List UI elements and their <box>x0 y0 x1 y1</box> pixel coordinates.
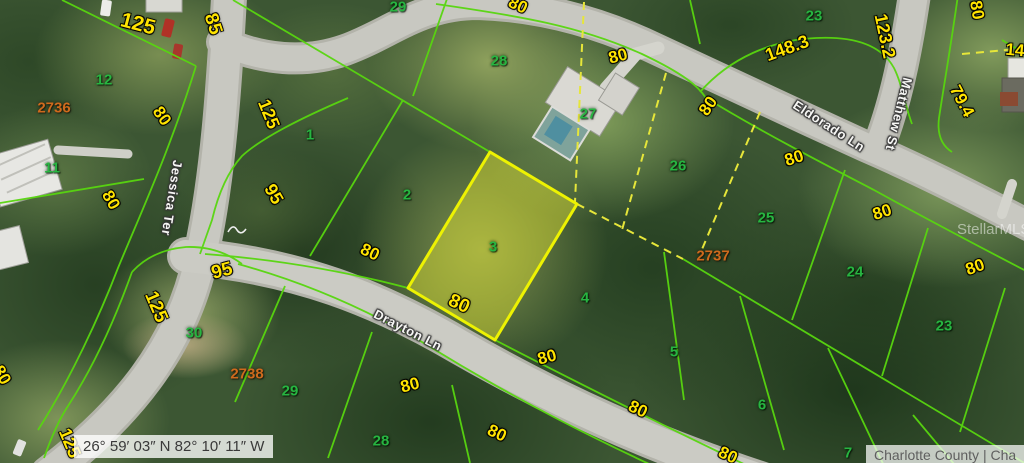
lot-number: 29 <box>282 384 299 399</box>
house-northeast <box>1000 58 1024 112</box>
lot-number: 5 <box>670 345 678 360</box>
watermark: StellarMLS <box>957 221 1024 238</box>
lot-number: 12 <box>96 73 113 88</box>
lot-number: 28 <box>373 434 390 449</box>
lot-number: 6 <box>758 398 766 413</box>
driveway <box>58 150 128 154</box>
lot-number: 26 <box>670 159 687 174</box>
aerial-parcel-map[interactable]: Jessica TerDrayton LnEldorado LnMatthew … <box>0 0 1024 463</box>
plat-number: 2736 <box>37 101 70 116</box>
lot-number: 7 <box>844 446 852 461</box>
car <box>12 439 26 457</box>
lot-number: 2 <box>403 188 411 203</box>
map-attribution: Charlotte County | Cha <box>866 445 1024 463</box>
lot-number: 28 <box>491 54 508 69</box>
dimension-label: 14 <box>1005 41 1024 60</box>
lot-number: 23 <box>936 319 953 334</box>
truck <box>100 0 112 17</box>
parcel-overlay <box>0 0 1024 463</box>
dimension-label: 80 <box>607 45 630 66</box>
lot-number: 24 <box>847 265 864 280</box>
pavement-mark <box>228 227 246 233</box>
dimension-label: 80 <box>536 346 559 367</box>
lot-number: 23 <box>806 9 823 24</box>
lot-number: 25 <box>758 211 775 226</box>
dimension-label: 95 <box>209 259 234 283</box>
lot-number: 27 <box>580 107 597 122</box>
coordinate-readout: 26° 59′ 03″ N 82° 10′ 11″ W <box>74 435 273 458</box>
dimension-label: 80 <box>967 0 987 21</box>
lot-number: 1 <box>306 128 314 143</box>
lot-number: 4 <box>581 291 589 306</box>
car <box>161 18 175 38</box>
dimension-label: 80 <box>399 374 422 395</box>
lot-number: 3 <box>489 240 497 255</box>
lot-number: 29 <box>390 0 407 15</box>
lot-number: 11 <box>44 161 60 176</box>
plat-number: 2737 <box>696 249 729 264</box>
lot-number: 30 <box>186 326 203 341</box>
plat-number: 2738 <box>230 367 263 382</box>
